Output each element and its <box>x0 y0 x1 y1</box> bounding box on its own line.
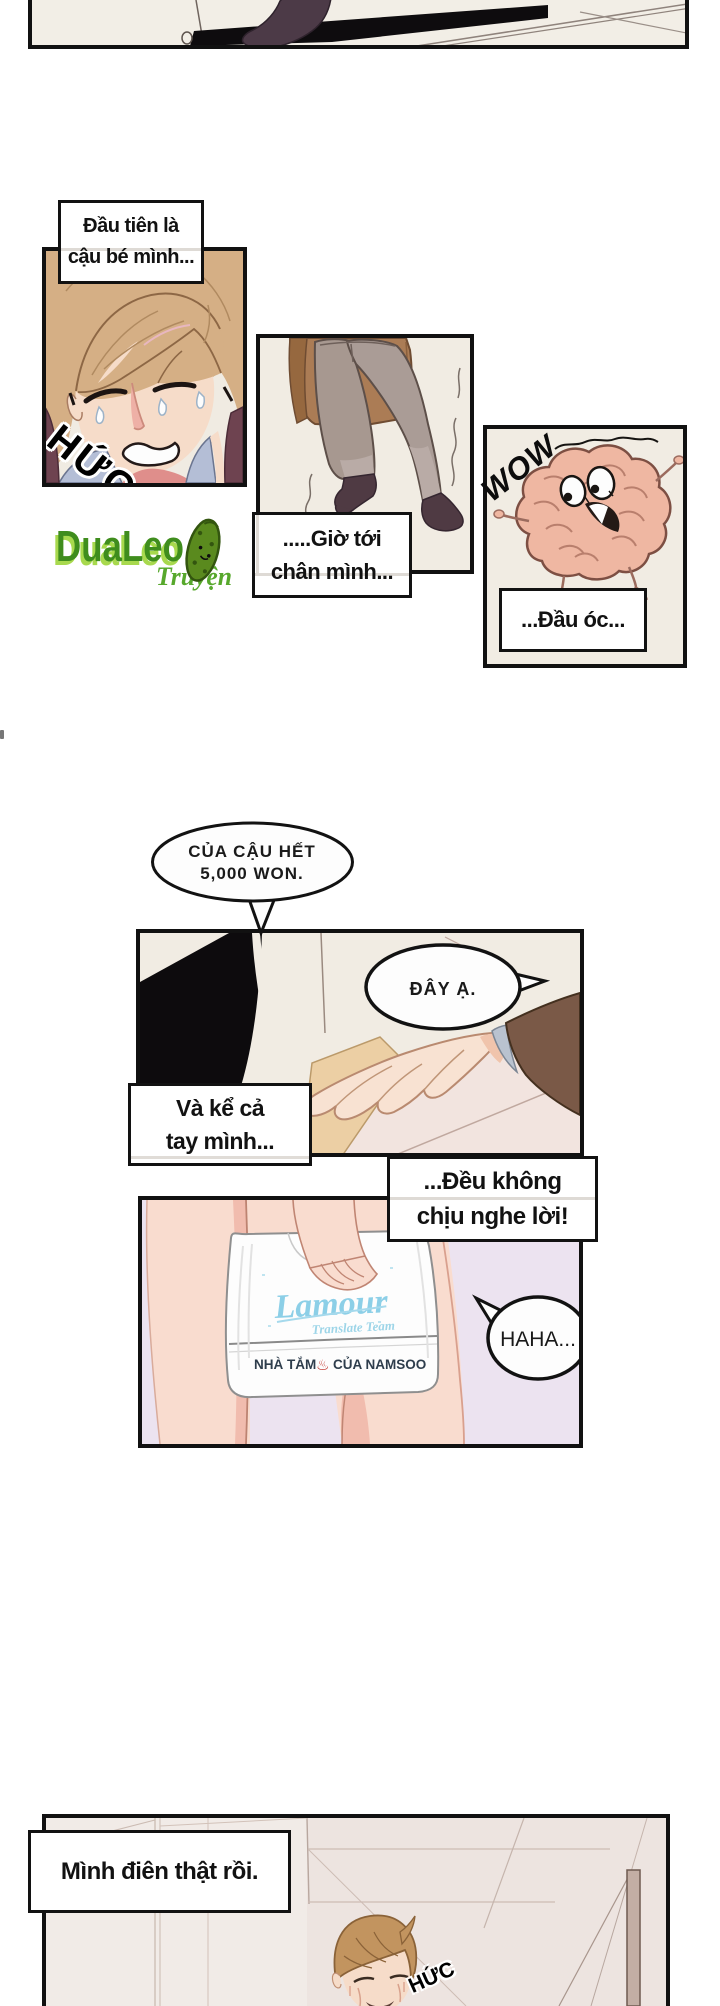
svg-text:5,000 WON.: 5,000 WON. <box>200 864 304 883</box>
svg-text:♨: ♨ <box>316 1357 329 1374</box>
svg-text:ĐÂY Ạ.: ĐÂY Ạ. <box>410 978 477 999</box>
svg-text:NHÀ TẮM: NHÀ TẮM <box>254 1357 316 1372</box>
svg-text:CỦA NAMSOO: CỦA NAMSOO <box>333 1357 426 1372</box>
svg-text:CỦA CẬU HẾT: CỦA CẬU HẾT <box>188 842 315 861</box>
svg-text:HAHA...: HAHA... <box>500 1328 576 1351</box>
